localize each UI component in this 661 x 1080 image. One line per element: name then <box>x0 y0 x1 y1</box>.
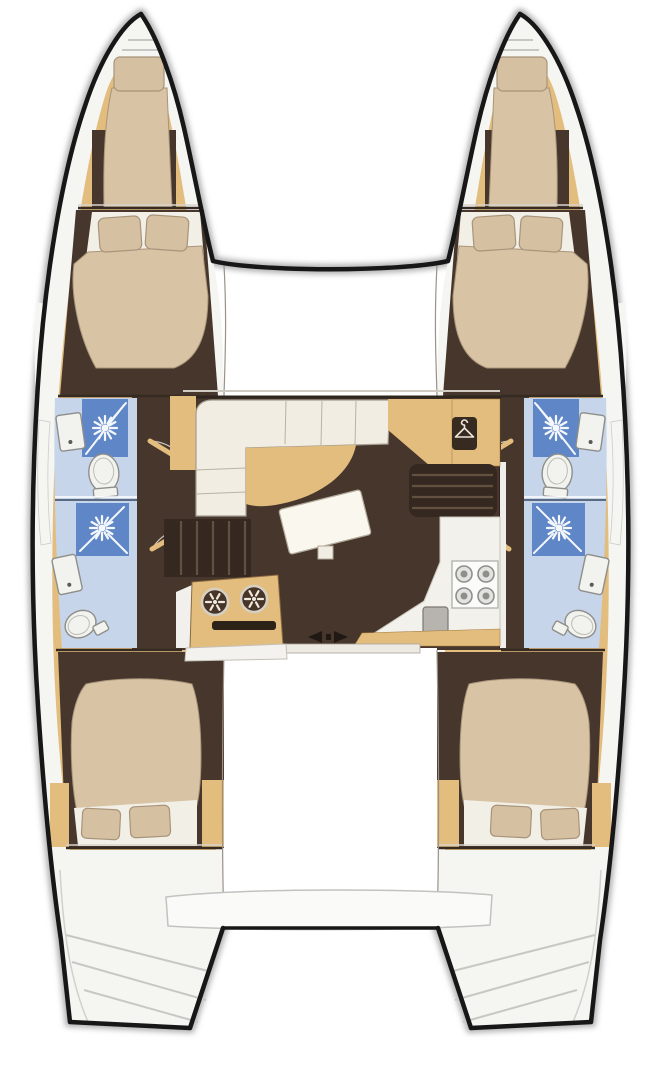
door-track <box>286 644 420 653</box>
starboard-companionway-stairs <box>409 464 497 517</box>
instrument-dial-icon <box>202 589 228 615</box>
starboard-fwd-sink <box>576 412 606 451</box>
salon <box>164 391 506 661</box>
table-pedestal <box>318 546 333 559</box>
burner-icon <box>478 588 494 604</box>
wardrobe <box>452 417 477 450</box>
burner-icon <box>456 588 472 604</box>
aft-platform <box>166 890 492 930</box>
catamaran-layout-diagram <box>0 0 661 1080</box>
burner-icon <box>456 566 472 582</box>
burner-icon <box>478 566 494 582</box>
instrument-slot <box>212 621 276 630</box>
instrument-dial-icon <box>241 586 267 612</box>
port-forward-cabin <box>73 212 208 368</box>
starboard-forepeak-berth <box>489 57 557 207</box>
port-fwd-pillow-1 <box>98 216 142 253</box>
port-fwd-sink <box>56 412 86 451</box>
galley-sink <box>423 607 448 633</box>
port-aft-bed <box>71 679 201 812</box>
port-fwd-bed <box>73 246 208 368</box>
instrument-station <box>176 575 287 661</box>
starboard-forward-cabin <box>453 212 588 368</box>
port-forepeak-mattress <box>104 88 172 207</box>
port-fwd-pillow-2 <box>145 215 189 252</box>
boat-floor-plan <box>0 0 661 1080</box>
port-aft-pillow-2 <box>129 805 171 838</box>
port-aft-pillow-1 <box>81 808 121 840</box>
port-forepeak-berth <box>104 57 172 207</box>
port-companionway-stairs <box>164 519 251 577</box>
port-forepeak-pillow <box>114 57 164 91</box>
